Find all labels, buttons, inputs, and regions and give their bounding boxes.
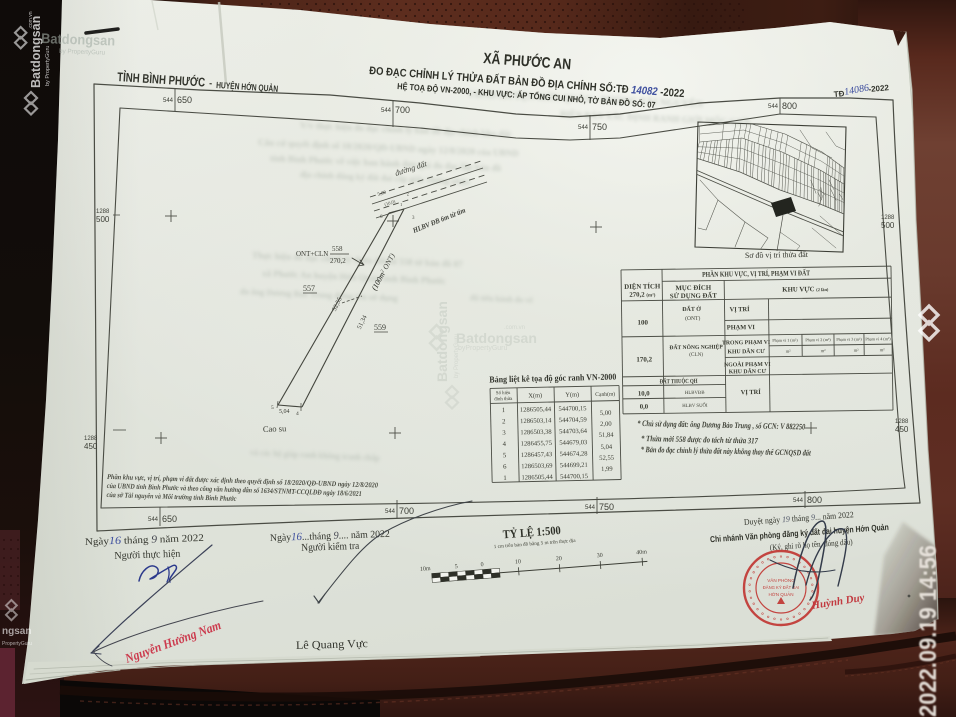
svg-text:HỚN QUẢN: HỚN QUẢN [768,591,793,597]
svg-text:10,0: 10,0 [638,390,651,397]
svg-text:544: 544 [381,108,392,114]
svg-text:m²: m² [786,349,791,354]
svg-text:270,2 (m²): 270,2 (m²) [629,291,655,298]
svg-text:5,04: 5,04 [279,409,290,415]
svg-text:544679,03: 544679,03 [559,439,588,447]
svg-text:4: 4 [296,411,299,417]
svg-text:544: 544 [385,509,396,515]
svg-text:PHẠM VI: PHẠM VI [727,324,756,331]
svg-text:TRONG PHẠM VI: TRONG PHẠM VI [722,340,771,347]
svg-text:1286505,44: 1286505,44 [520,406,552,414]
svg-text:10m: 10m [420,566,431,573]
svg-text:5: 5 [455,564,458,570]
svg-text:m²: m² [880,347,885,352]
svg-text:500: 500 [96,215,110,224]
svg-text:(ONT): (ONT) [685,315,700,322]
svg-text:Batdongsan: Batdongsan [41,30,116,49]
svg-text:544699,21: 544699,21 [560,462,588,470]
svg-text:544: 544 [585,505,596,511]
svg-text:Người thực hiện: Người thực hiện [114,549,181,562]
svg-text:5: 5 [271,405,274,411]
svg-text:1286455,75: 1286455,75 [521,440,553,448]
svg-text:544700,15: 544700,15 [560,473,589,481]
svg-text:ĐẤT THUỘC QH: ĐẤT THUỘC QH [660,377,698,386]
svg-text:10: 10 [515,559,521,565]
svg-text:VĂN PHÒNG: VĂN PHÒNG [767,577,795,583]
svg-text:557: 557 [303,284,315,293]
svg-text:544: 544 [793,498,804,504]
svg-text:51,84: 51,84 [599,432,615,439]
svg-text:450: 450 [84,442,98,451]
svg-text:DIỆN TÍCH: DIỆN TÍCH [624,282,661,291]
svg-text:800: 800 [807,495,822,505]
svg-text:650: 650 [162,514,177,524]
svg-text:1286503,38: 1286503,38 [520,429,552,437]
svg-text:Batdongsan: Batdongsan [29,16,43,88]
svg-text:500: 500 [881,221,895,230]
svg-text:ngsan: ngsan [2,626,31,637]
svg-text:Lê Quang Vực: Lê Quang Vực [296,638,368,652]
svg-text:Y(m): Y(m) [565,391,579,398]
svg-text:(CLN): (CLN) [689,351,703,358]
svg-text:Phạm vi 3 (m²): Phạm vi 3 (m²) [836,337,862,342]
svg-text:450: 450 [895,425,909,434]
svg-text:2022.09.19 14:56: 2022.09.19 14:56 [915,545,942,717]
svg-text:Phạm vi 2 (m²): Phạm vi 2 (m²) [805,337,831,342]
svg-text:30: 30 [597,553,603,559]
svg-text:559: 559 [374,323,386,332]
svg-text:1286457,43: 1286457,43 [521,451,553,459]
svg-text:0,0: 0,0 [640,404,649,411]
svg-text:544700,15: 544700,15 [558,405,587,413]
svg-text:Batdongsan: Batdongsan [456,330,537,346]
svg-text:100: 100 [637,319,648,327]
svg-text:1286503,69: 1286503,69 [521,463,553,471]
svg-text:52,55: 52,55 [599,455,615,462]
svg-text:0: 0 [480,562,483,568]
svg-text:1,99: 1,99 [601,466,613,473]
svg-text:đỉnh thửa: đỉnh thửa [494,397,513,402]
svg-text:20: 20 [556,556,562,562]
svg-text:by PropertyGuru: by PropertyGuru [45,46,51,86]
svg-text:544674,28: 544674,28 [559,450,588,458]
svg-text:700: 700 [399,506,414,516]
svg-text:m²: m² [821,348,826,353]
svg-text:Sơ đồ vị trí thửa đất: Sơ đồ vị trí thửa đất [745,250,809,260]
svg-text:558: 558 [332,245,343,253]
svg-text:1286503,14: 1286503,14 [520,417,552,425]
svg-text:544704,59: 544704,59 [559,417,588,425]
svg-text:byPropertyGuru: byPropertyGuru [458,345,508,352]
svg-text:Cao su: Cao su [263,423,287,434]
svg-text:544: 544 [578,125,589,131]
svg-text:750: 750 [599,502,614,512]
svg-text:Batdongsan: Batdongsan [434,301,450,382]
svg-text:Người kiểm tra: Người kiểm tra [301,541,360,554]
svg-text:40m: 40m [636,549,647,556]
svg-text:Số hiệu: Số hiệu [496,391,511,396]
svg-text:270,2: 270,2 [330,257,346,265]
svg-text:SỬ DỤNG ĐẤT: SỬ DỤNG ĐẤT [670,292,718,301]
svg-text:Phạm vi 4 (m²): Phạm vi 4 (m²) [865,336,891,341]
svg-text:1: 1 [503,475,507,482]
svg-text:2,00: 2,00 [600,421,612,428]
svg-text:5,04: 5,04 [601,444,613,451]
svg-text:1: 1 [502,407,506,414]
svg-text:PropertyGuru: PropertyGuru [2,641,32,647]
svg-text:HLBVĐB: HLBVĐB [685,391,705,396]
svg-text:544: 544 [768,104,779,110]
svg-text:HLBV SUỐI: HLBV SUỐI [682,403,708,409]
svg-text:650: 650 [177,95,192,105]
svg-text:X(m): X(m) [528,392,542,399]
svg-text:Phạm vi 1 (m²): Phạm vi 1 (m²) [772,337,798,342]
svg-text:544: 544 [163,98,174,104]
svg-text:Cạnh(m): Cạnh(m) [595,391,615,398]
svg-text:750: 750 [592,122,607,132]
svg-text:544: 544 [148,517,159,523]
svg-text:ONT+CLN: ONT+CLN [296,250,328,258]
svg-text:MỤC ĐÍCH: MỤC ĐÍCH [675,284,712,293]
svg-text:m²: m² [854,348,859,353]
svg-text:-: - [209,78,213,88]
svg-text:170,2: 170,2 [636,355,652,363]
svg-text:VỊ TRÍ: VỊ TRÍ [730,305,751,313]
svg-text:800: 800 [782,101,797,111]
svg-text:544703,64: 544703,64 [559,428,588,436]
svg-text:VỊ TRÍ: VỊ TRÍ [741,388,762,396]
svg-text:-2022: -2022 [868,83,890,94]
svg-text:5,00: 5,00 [600,410,612,417]
svg-text:1286505,44: 1286505,44 [521,474,553,482]
svg-text:700: 700 [395,105,410,115]
